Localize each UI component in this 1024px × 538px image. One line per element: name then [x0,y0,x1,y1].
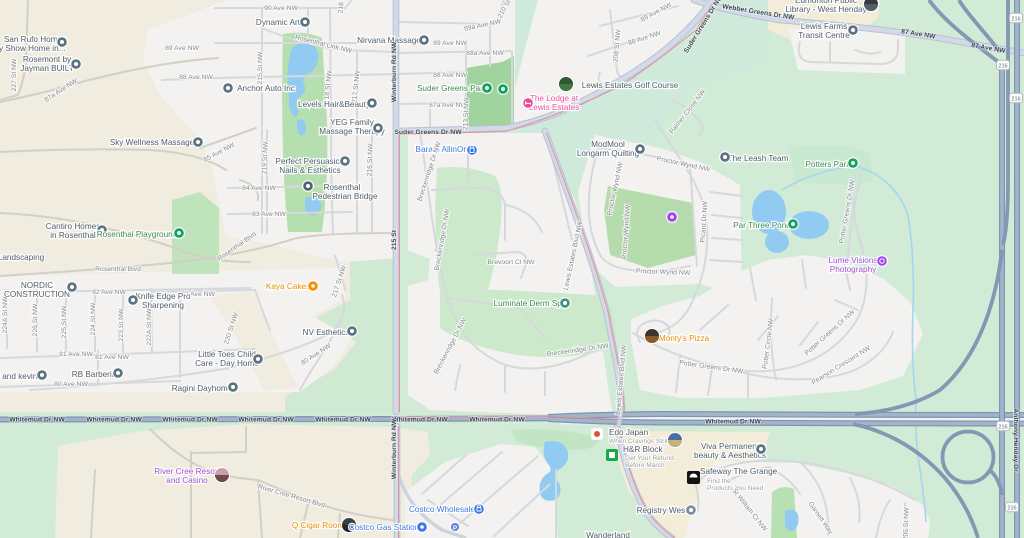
svg-text:216: 216 [998,424,1007,430]
svg-text:Whitemud Dr NW: Whitemud Dr NW [392,417,448,424]
svg-text:88 Ave NW: 88 Ave NW [179,74,213,81]
svg-text:224 St NW: 224 St NW [90,302,97,335]
svg-text:ModMool: ModMool [591,140,625,149]
svg-text:Dynamic Art: Dynamic Art [256,18,301,27]
svg-text:Before March: Before March [625,462,665,469]
svg-text:Whitemud Dr NW: Whitemud Dr NW [705,419,761,426]
svg-text:Costco Gas Station: Costco Gas Station [349,523,420,532]
svg-text:Anthony Henday Dr: Anthony Henday Dr [1012,408,1019,472]
svg-text:Knife Edge Pro: Knife Edge Pro [135,292,191,301]
svg-text:89 Ave NW: 89 Ave NW [433,40,467,47]
svg-text:Whitemud Dr NW: Whitemud Dr NW [469,417,525,424]
svg-text:Suder Greens Dr NW: Suder Greens Dr NW [394,129,462,136]
svg-text:Photography: Photography [830,265,877,274]
svg-text:CONSTRUCTION: CONSTRUCTION [4,290,70,299]
svg-text:87a Ave NW: 87a Ave NW [429,102,467,109]
svg-text:Winterburn Rd NW: Winterburn Rd NW [391,418,398,479]
svg-text:Luminate Derm Spa: Luminate Derm Spa [494,299,567,308]
svg-text:Suder Greens Park: Suder Greens Park [417,84,488,93]
svg-text:216: 216 [1007,505,1016,511]
svg-text:P: P [453,525,458,532]
svg-text:80 Ave NW: 80 Ave NW [54,381,88,388]
svg-text:81 Ave NW: 81 Ave NW [59,351,93,358]
svg-text:Sky Wellness Massage: Sky Wellness Massage [110,138,195,147]
svg-text:Cantiro Homes: Cantiro Homes [46,222,101,231]
svg-text:Ragini Dayhome: Ragini Dayhome [172,384,233,393]
svg-text:NORDIC: NORDIC [21,281,53,290]
svg-text:205 St NW: 205 St NW [902,507,910,538]
svg-text:Q Cigar Room: Q Cigar Room [292,521,345,530]
svg-text:226 St NW: 226 St NW [32,303,39,336]
svg-text:215 St: 215 St [391,229,398,250]
svg-text:YEG Family: YEG Family [330,118,375,127]
svg-text:216: 216 [1011,96,1020,102]
svg-text:Registry West: Registry West [637,506,689,515]
svg-text:218: 218 [338,2,346,14]
svg-text:The Leash Team: The Leash Team [728,154,789,163]
svg-text:in Rosenthal: in Rosenthal [50,231,96,240]
svg-text:84 Ave NW: 84 Ave NW [242,185,276,192]
svg-text:88a Ave NW: 88a Ave NW [466,50,504,57]
svg-text:222A St NW: 222A St NW [146,308,153,346]
svg-text:When Cravings Strike: When Cravings Strike [609,438,673,445]
svg-text:Winterburn Rd NW: Winterburn Rd NW [391,41,398,102]
svg-text:Rosenthal Blvd: Rosenthal Blvd [95,266,141,273]
svg-text:Costco Wholesale: Costco Wholesale [409,505,475,514]
svg-text:216: 216 [1011,16,1020,22]
svg-text:82 Ave NW: 82 Ave NW [92,289,126,296]
svg-text:227 St NW: 227 St NW [11,58,18,91]
svg-text:Lewis Estates: Lewis Estates [529,103,580,112]
svg-text:Little Toes Child: Little Toes Child [198,350,256,359]
svg-text:224A St NW: 224A St NW [2,296,9,334]
svg-text:83 Ave NW: 83 Ave NW [252,211,286,218]
svg-text:Jayman BUILT: Jayman BUILT [20,64,74,73]
svg-text:223 St NW: 223 St NW [118,308,125,341]
svg-text:Whitemud Dr NW: Whitemud Dr NW [315,417,371,424]
svg-text:Rosenthal Playground: Rosenthal Playground [97,230,178,239]
svg-text:Whitemud Dr NW: Whitemud Dr NW [238,417,294,424]
svg-text:213 St NW: 213 St NW [462,97,470,131]
svg-text:Nirvana Massage: Nirvana Massage [357,36,421,45]
svg-text:Landscaping: Landscaping [0,253,45,262]
svg-text:Anchor Auto Inc: Anchor Auto Inc [237,84,295,93]
svg-text:Transit Centre: Transit Centre [798,31,850,40]
svg-text:Edo Japan: Edo Japan [609,428,649,437]
svg-text:Barato AllinOne: Barato AllinOne [416,145,473,154]
svg-text:beauty & Aesthetics: beauty & Aesthetics [694,451,766,460]
svg-text:Whitemud Dr NW: Whitemud Dr NW [9,417,65,424]
svg-text:88 Ave NW: 88 Ave NW [433,72,467,79]
svg-text:Find the: Find the [707,478,731,485]
svg-text:89 Ave NW: 89 Ave NW [165,45,199,52]
svg-text:Rosemont by: Rosemont by [23,55,72,64]
svg-text:NV Esthetics: NV Esthetics [303,328,350,337]
svg-text:RB Barberia: RB Barberia [72,370,117,379]
svg-text:90 Ave NW: 90 Ave NW [264,5,298,12]
svg-text:225 St NW: 225 St NW [61,305,68,338]
svg-text:Lume Visions: Lume Visions [828,256,877,265]
svg-text:and Casino: and Casino [166,476,208,485]
svg-text:Par Three Pond: Par Three Pond [733,221,791,230]
svg-text:219 St NW: 219 St NW [261,141,269,175]
svg-text:The Lodge at: The Lodge at [530,94,579,103]
svg-text:Viva Permanent: Viva Permanent [701,442,760,451]
svg-text:216: 216 [998,63,1007,69]
svg-text:81 Ave NW: 81 Ave NW [95,354,129,361]
svg-text:216 St NW: 216 St NW [366,143,374,177]
svg-text:Lewis Farms: Lewis Farms [801,22,847,31]
svg-text:Lewis Estates Golf Course: Lewis Estates Golf Course [582,81,679,90]
svg-text:Longarm Quilting: Longarm Quilting [577,149,640,158]
svg-text:Brevoort Cl NW: Brevoort Cl NW [487,259,535,266]
svg-text:er and kevin: er and kevin [0,372,38,381]
svg-text:Get Your Refund: Get Your Refund [625,455,674,462]
svg-text:dy Show Home in...: dy Show Home in... [0,44,66,53]
svg-text:Wanderland: Wanderland [586,531,630,538]
svg-text:Whitemud Dr NW: Whitemud Dr NW [162,417,218,424]
svg-text:Monty's Pizza: Monty's Pizza [659,334,710,343]
svg-text:River Cree Resort: River Cree Resort [154,467,220,476]
svg-text:Rosenthal: Rosenthal [324,183,361,192]
svg-text:Safeway The Grange: Safeway The Grange [700,467,778,476]
svg-text:Library - West Henday: Library - West Henday [785,5,867,14]
svg-text:Care - Day Home: Care - Day Home [195,359,259,368]
svg-text:215 St NW: 215 St NW [257,51,264,84]
svg-text:Levels Hair&Beauty: Levels Hair&Beauty [298,100,371,109]
svg-text:Whitemud Dr NW: Whitemud Dr NW [86,417,142,424]
svg-text:Perfect Persuasion: Perfect Persuasion [275,157,345,166]
svg-text:Potters Park: Potters Park [805,160,851,169]
svg-text:Nails & Esthetics: Nails & Esthetics [279,166,340,175]
svg-text:Kaya Cakes: Kaya Cakes [266,282,310,291]
svg-text:Pedestrian Bridge: Pedestrian Bridge [312,192,378,201]
svg-text:H&R Block: H&R Block [623,445,663,454]
